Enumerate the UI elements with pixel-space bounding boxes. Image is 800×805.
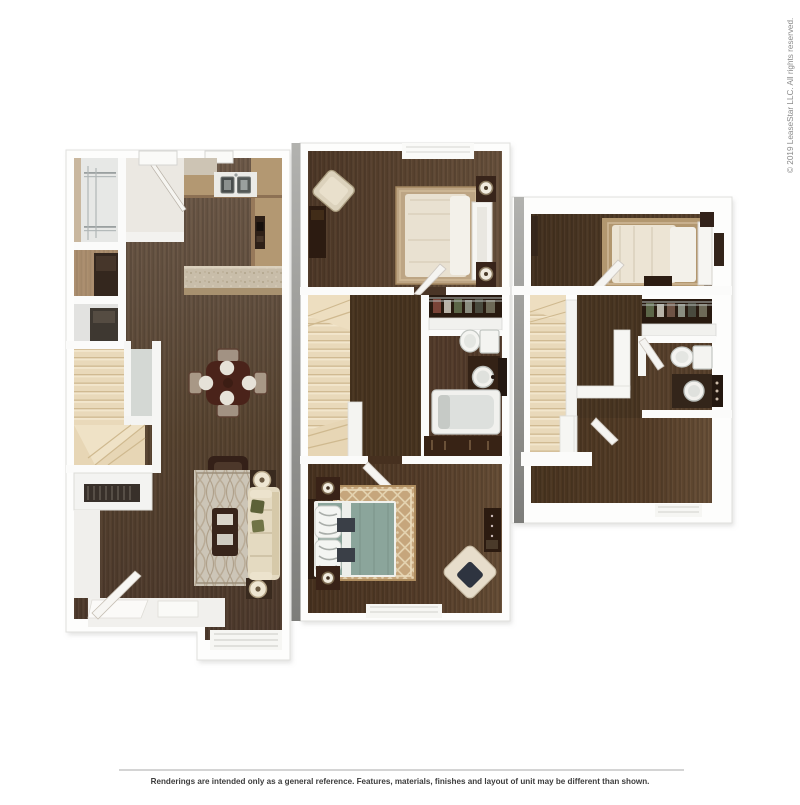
svg-text:Renderings are intended only a: Renderings are intended only as a genera… [151,777,650,786]
svg-text:© 2019 LeaseStar LLC. All righ: © 2019 LeaseStar LLC. All rights reserve… [786,18,795,173]
